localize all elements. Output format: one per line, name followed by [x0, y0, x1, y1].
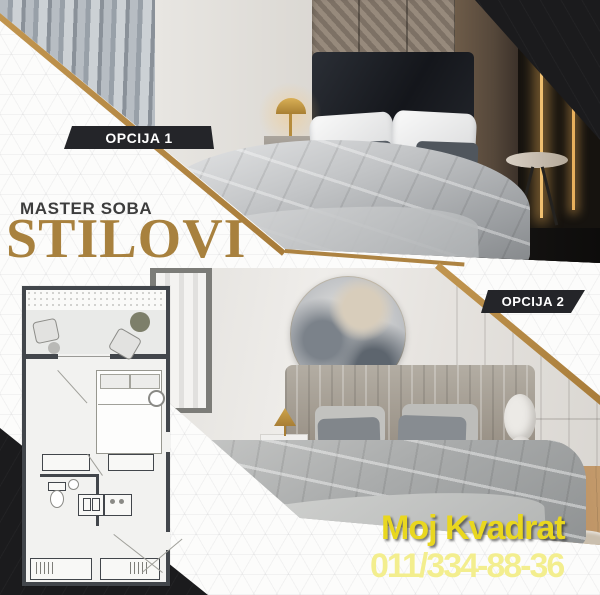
plan-closet-ticks — [36, 562, 54, 574]
bedroom2-lamp-stem — [284, 426, 286, 436]
bedroom1-lamp-stem — [289, 114, 292, 138]
plan-burner — [110, 499, 115, 504]
plan-burner — [119, 499, 124, 504]
plan-sliding-door — [58, 356, 110, 357]
bedroom1-side-table — [506, 152, 568, 168]
plan-bed-pillow — [130, 374, 160, 389]
plan-toilet — [50, 490, 64, 508]
title-main: STILOVI — [6, 211, 246, 267]
option-2-label: OPCIJA 2 — [502, 294, 565, 309]
option-1-label: OPCIJA 1 — [105, 130, 172, 146]
phone-number: 011/334-88-36 — [370, 547, 563, 586]
company-name: Moj Kvadrat — [381, 509, 565, 548]
plan-stove — [104, 494, 132, 516]
plan-plant — [130, 312, 150, 332]
plan-inner-wall — [40, 474, 96, 477]
plan-lamp-symbol — [148, 390, 165, 407]
plan-wardrobe — [108, 454, 154, 471]
plan-sink-basin — [83, 498, 91, 511]
plan-sink — [68, 479, 79, 490]
plan-bed-pillow — [100, 374, 130, 389]
plan-sink-basin — [92, 498, 100, 511]
option-2-badge: OPCIJA 2 — [481, 290, 585, 313]
option-1-badge: OPCIJA 1 — [64, 126, 214, 149]
plan-wall — [22, 582, 170, 586]
plan-door-swing — [57, 370, 87, 403]
plan-kitchen-sink — [78, 494, 104, 516]
plan-wardrobe — [42, 454, 90, 471]
plan-balcony-hatch — [26, 290, 166, 310]
plan-wall-niche — [162, 532, 170, 550]
plan-wall-niche — [162, 432, 170, 452]
plan-side-table — [48, 342, 60, 354]
bedroom2-sculpture-lamp — [504, 394, 536, 442]
promo-graphic: OPCIJA 1 OPCIJA 2 MASTER SOBA STILOVI Mo… — [0, 0, 600, 595]
floor-plan — [22, 286, 170, 586]
